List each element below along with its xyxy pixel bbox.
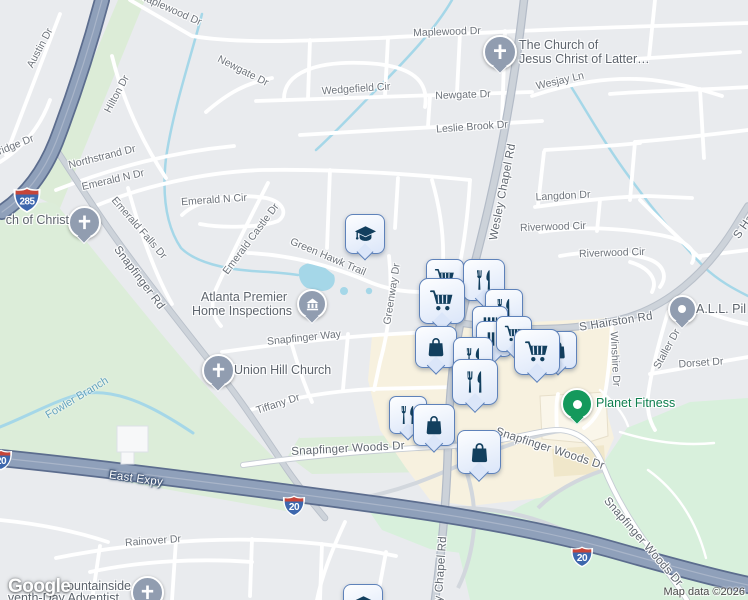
graduation-cap-marker[interactable] (343, 584, 383, 600)
restaurant-marker[interactable] (452, 359, 498, 405)
google-logo[interactable]: Google (8, 576, 70, 598)
map-base-layer (0, 0, 748, 600)
all-pil-label[interactable]: A.L.L. Pil (696, 302, 746, 316)
church-of-christ-label[interactable]: ch of Christ (6, 213, 69, 227)
shopping-bag-marker[interactable] (413, 404, 455, 446)
atlanta-premier-home-inspections-label[interactable]: Atlanta Premier (201, 290, 287, 304)
the-church-of-jesus-christ-label[interactable]: The Church of (519, 38, 598, 52)
shopping-bag-marker[interactable] (457, 430, 501, 474)
church-icon[interactable] (202, 354, 235, 387)
map-attribution: Map data ©2026 (664, 586, 746, 598)
shopping-cart-marker[interactable] (514, 329, 560, 375)
atlanta-premier-home-inspections-label[interactable]: Home Inspections (192, 304, 292, 318)
shopping-bag-marker[interactable] (415, 326, 457, 368)
shopping-cart-marker[interactable] (419, 278, 465, 324)
graduation-cap-marker[interactable] (345, 214, 385, 254)
map-canvas[interactable]: Maplewood DrMaplewood DrNewgate DrNewgat… (0, 0, 748, 600)
home-inspection-icon[interactable] (297, 289, 327, 319)
interstate-20-shield: 20 (0, 449, 13, 471)
dot-green-icon[interactable] (561, 388, 593, 420)
union-hill-church-label[interactable]: Union Hill Church (234, 363, 331, 377)
planet-fitness-label[interactable]: Planet Fitness (596, 396, 675, 410)
interstate-285-shield: 285 (12, 187, 42, 214)
the-church-of-jesus-christ-label[interactable]: Jesus Christ of Latter… (519, 52, 650, 66)
church-icon[interactable] (68, 206, 101, 239)
church-icon[interactable] (483, 35, 517, 69)
interstate-20-shield: 20 (282, 495, 306, 517)
interstate-20-shield: 20 (570, 546, 594, 568)
dot-gray-icon[interactable] (668, 295, 697, 324)
